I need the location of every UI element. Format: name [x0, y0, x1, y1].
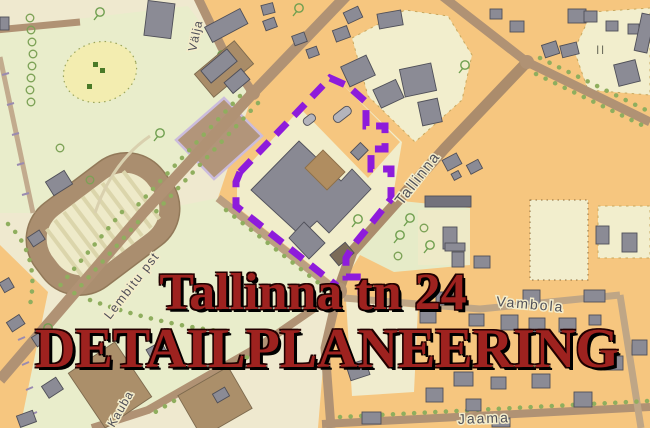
storey-marker: II	[596, 43, 606, 57]
base-map: Välja Tallinna Lembitu pst Kauba Vambola…	[0, 0, 650, 428]
map-viewport[interactable]: Välja Tallinna Lembitu pst Kauba Vambola…	[0, 0, 650, 428]
storey-marker: II	[604, 328, 612, 339]
street-label-jaama: Jaama	[458, 409, 511, 427]
